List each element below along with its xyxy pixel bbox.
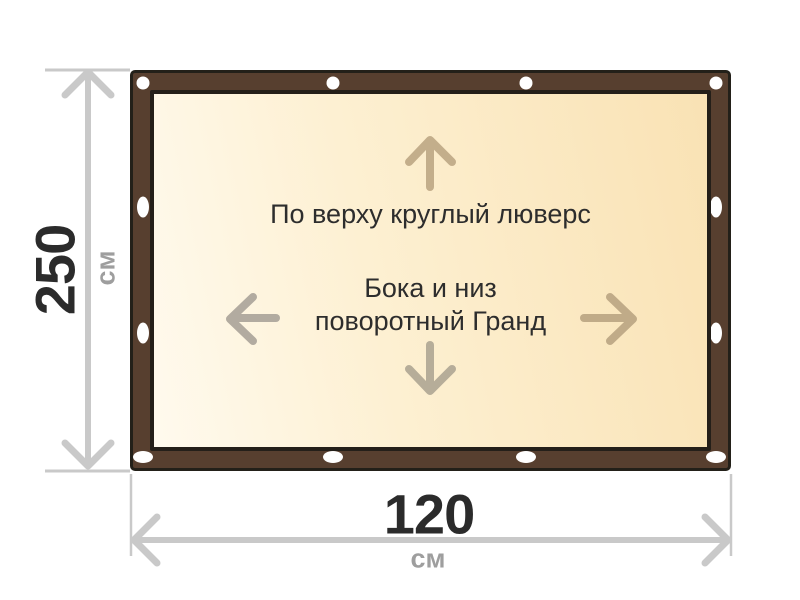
product-diagram: По верху круглый люверс Бока и низ повор… — [0, 0, 800, 600]
height-dimension-value: 250 — [23, 225, 88, 315]
center-note-line2: поворотный Гранд — [153, 305, 708, 338]
center-note-line1: Бока и низ — [153, 272, 708, 305]
top-edge-note: По верху круглый люверс — [153, 198, 708, 231]
center-note: Бока и низ поворотный Гранд — [153, 272, 708, 338]
width-dimension-unit: см — [411, 544, 446, 575]
width-dimension-value: 120 — [384, 482, 474, 547]
height-dimension-unit: см — [91, 251, 122, 286]
